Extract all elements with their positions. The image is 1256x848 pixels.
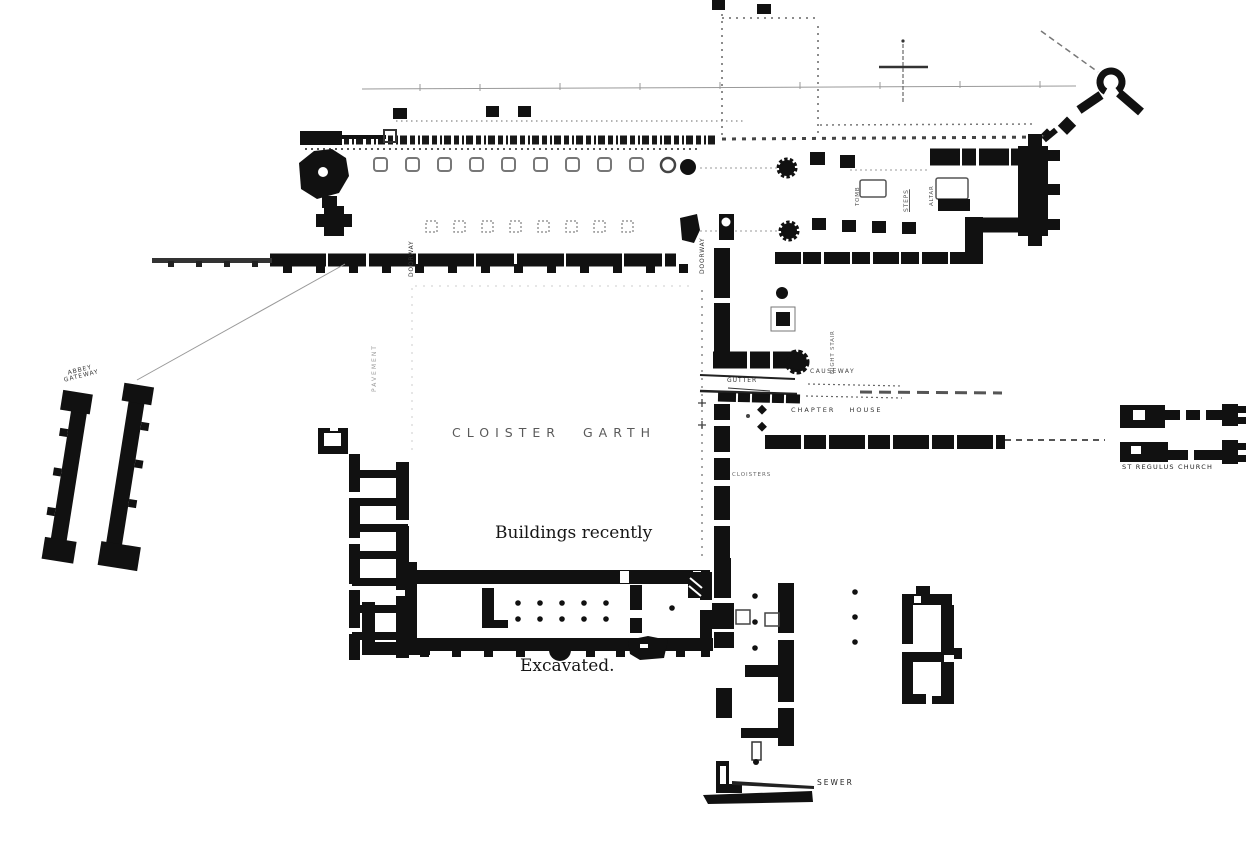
doorway-label-transept: DOORWAY: [700, 238, 706, 275]
choir-presbytery: [775, 130, 1060, 264]
pavement-label: PAVEMENT: [372, 344, 378, 392]
sewer-walls: [703, 761, 814, 804]
choir-north-wall-ruin: [722, 137, 1048, 139]
east-gable: [1018, 130, 1060, 246]
cross-marker-dot: [901, 39, 904, 42]
refectory-south-range: [405, 570, 713, 661]
north-transept-dotted-outline: [722, 14, 818, 138]
west-front: [299, 130, 396, 236]
gateway-west-wall: [37, 390, 100, 564]
tomb-outline: [936, 178, 968, 199]
altar-label: ALTAR: [930, 185, 936, 206]
survey-line: [362, 86, 1076, 89]
sewer-channel: [732, 781, 814, 789]
engraved-abbey-plan-page: { "plan": { "colors": { "ink": "#111111"…: [0, 0, 1256, 848]
tomb-label: TOMB: [856, 187, 862, 206]
east-range-lower: [688, 558, 858, 765]
chapter-house-north-wall: [860, 392, 1002, 393]
earlier-foundation-lines: [362, 0, 1076, 138]
sewer-label: SEWER: [817, 779, 854, 787]
pier-foundation-block: [757, 4, 771, 14]
precinct-faint-line: [137, 264, 345, 380]
nave-south-pier-row: [426, 221, 633, 232]
wall-block: [1058, 117, 1076, 135]
foundation-dotted-line-east: [820, 124, 1036, 125]
cloisters-label: CLOISTERS: [732, 473, 771, 479]
cathedral-church: [137, 130, 1060, 380]
gateway-east-wall: [96, 383, 166, 571]
garth-label-cloister: CLOISTER: [452, 426, 561, 439]
detached-building: [902, 586, 962, 704]
precinct-wall-turret: [1031, 31, 1141, 146]
abbey-gateway: [37, 383, 166, 571]
pier-foundation-block: [486, 106, 499, 117]
cloister-ranges: [318, 286, 1105, 804]
precinct-dashed-wall: [1041, 31, 1098, 72]
doorway-label-nave: DOORWAY: [409, 241, 415, 278]
chapter-house-label: CHAPTER HOUSE: [791, 407, 882, 414]
night-stair-label: NIGHT STAIR: [831, 330, 837, 374]
tomb-outline: [860, 180, 886, 197]
plan-drawing: [0, 0, 1256, 848]
pier-foundation-block: [518, 106, 531, 117]
caption-line1: Buildings recently: [495, 525, 652, 543]
cloister-doorway-jamb: [680, 214, 700, 243]
pier-foundation-block: [393, 108, 407, 119]
st-regulus-label: ST REGULUS CHURCH: [1122, 464, 1213, 471]
survey-ticks: [420, 81, 1040, 91]
steps-label: STEPS: [904, 189, 910, 212]
plan-surface: CLOISTER GARTH Buildings recently Excava…: [0, 0, 1256, 848]
garth-label-garth: GARTH: [583, 426, 656, 439]
gutter-label: GUTTER: [727, 378, 757, 384]
pier-foundation-block: [712, 0, 725, 10]
undercroft-pillar-dots: [515, 600, 675, 622]
nave-north-pier-row: [374, 158, 675, 172]
altar-block: [938, 199, 970, 211]
wall-segment: [1119, 93, 1141, 112]
caption-line2: Excavated.: [520, 658, 615, 676]
wall-segment: [1079, 95, 1101, 110]
st-regulus-church: [1120, 404, 1246, 464]
